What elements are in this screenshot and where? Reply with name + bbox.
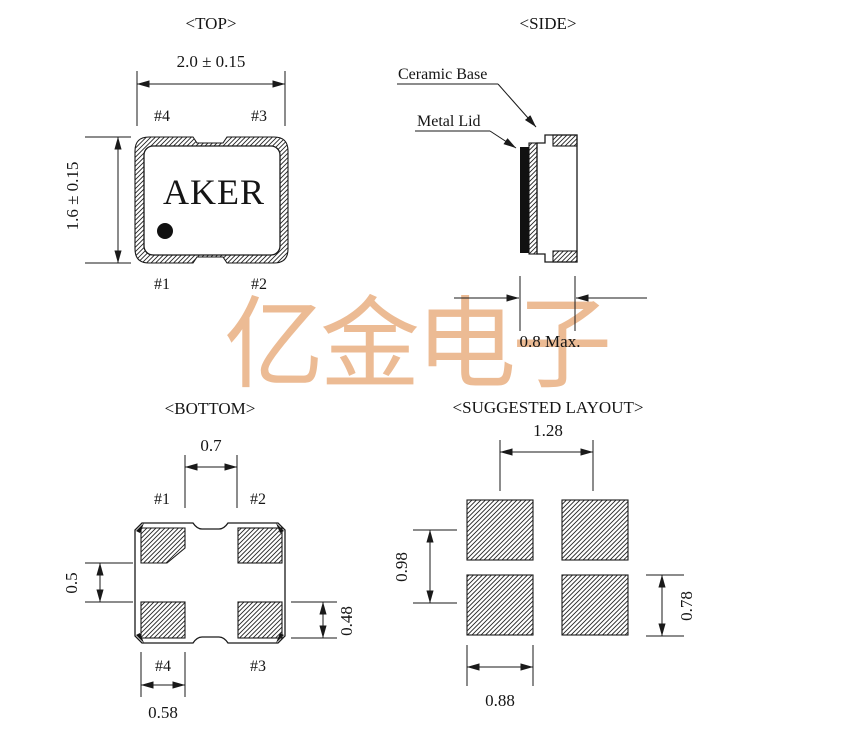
- drawing-page: 亿金电子 <TOP> 2.0 ± 0.15 #4 #3 AKER: [0, 0, 855, 742]
- side-ceramic-section-top: [553, 135, 577, 146]
- brand-marking: AKER: [163, 172, 265, 212]
- bottom-gap-y-dimension-text: 0.5: [62, 572, 81, 593]
- top-view: <TOP> 2.0 ± 0.15 #4 #3 AKER 1.6 ± 0.15 #…: [63, 14, 288, 293]
- side-metal-lid: [520, 147, 529, 253]
- side-seal-section: [529, 143, 537, 254]
- bottom-pad-3: [238, 602, 282, 638]
- side-view: <SIDE> Ceramic Base Metal Lid 0.8 Max.: [397, 14, 647, 351]
- ceramic-base-label: Ceramic Base: [398, 66, 487, 83]
- side-ceramic-section-bottom: [553, 251, 577, 262]
- layout-pitch-y-dimension-text: 0.98: [392, 552, 411, 582]
- layout-pitch-x-dimension-text: 1.28: [533, 421, 563, 440]
- top-width-dimension-text: 2.0 ± 0.15: [177, 52, 246, 71]
- bottom-pin2-label: #2: [250, 491, 266, 508]
- bottom-pin1-label: #1: [154, 491, 170, 508]
- metal-lid-leader-arrow: [490, 131, 516, 148]
- technical-drawing-svg: <TOP> 2.0 ± 0.15 #4 #3 AKER 1.6 ± 0.15 #…: [0, 0, 855, 742]
- layout-pad-top-left: [467, 500, 533, 560]
- side-ceramic-base-body: [537, 135, 577, 262]
- bottom-pad-w-dimension-text: 0.58: [148, 703, 178, 722]
- ceramic-base-leader-arrow: [498, 84, 536, 127]
- side-view-title: <SIDE>: [520, 14, 577, 33]
- side-thickness-dimension-text: 0.8 Max.: [520, 332, 581, 351]
- bottom-pad-2: [238, 528, 282, 563]
- metal-lid-label: Metal Lid: [417, 113, 481, 130]
- top-pin4-label: #4: [154, 108, 170, 125]
- layout-pad-bottom-right: [562, 575, 628, 635]
- top-view-title: <TOP>: [186, 14, 237, 33]
- bottom-view-title: <BOTTOM>: [165, 399, 256, 418]
- layout-pad-top-right: [562, 500, 628, 560]
- bottom-gap-x-dimension-text: 0.7: [200, 436, 222, 455]
- layout-pad-w-dimension-text: 0.88: [485, 691, 515, 710]
- bottom-pin3-label: #3: [250, 658, 266, 675]
- pin1-index-dot: [157, 223, 173, 239]
- layout-view-title: <SUGGESTED LAYOUT>: [453, 398, 644, 417]
- bottom-pad-4: [141, 602, 185, 638]
- bottom-view: <BOTTOM> 0.7 #1 #2 0.5 0.48 #4: [62, 399, 356, 722]
- top-height-dimension-text: 1.6 ± 0.15: [63, 162, 82, 231]
- bottom-pin4-label: #4: [155, 658, 171, 675]
- bottom-pad-h-dimension-text: 0.48: [337, 606, 356, 636]
- layout-pad-h-dimension-text: 0.78: [677, 591, 696, 621]
- top-pin1-label: #1: [154, 276, 170, 293]
- top-pin2-label: #2: [251, 276, 267, 293]
- top-pin3-label: #3: [251, 108, 267, 125]
- layout-pad-bottom-left: [467, 575, 533, 635]
- suggested-layout-view: <SUGGESTED LAYOUT> 1.28 0.98 0.78 0.88: [392, 398, 696, 710]
